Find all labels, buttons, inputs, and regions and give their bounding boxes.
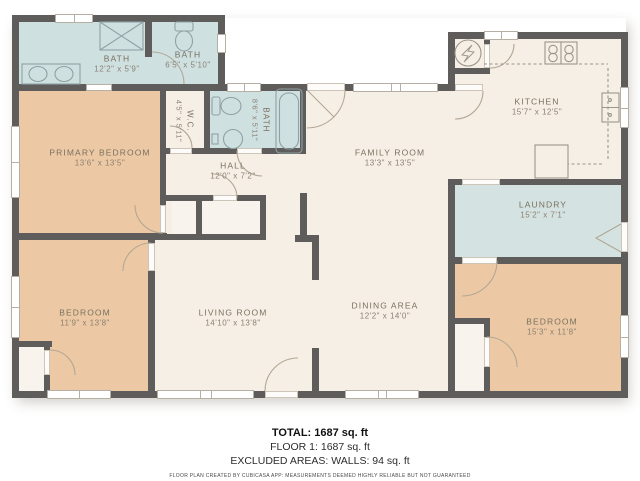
label-living-room: LIVING ROOM 14'10" x 13'8": [199, 307, 268, 330]
disclaimer: FLOOR PLAN CREATED BY CUBICASA APP: MEAS…: [0, 473, 640, 479]
door: [484, 44, 490, 68]
area-summary: TOTAL: 1687 sq. ft FLOOR 1: 1687 sq. ft …: [0, 428, 640, 479]
wall: [12, 233, 167, 240]
door: [265, 391, 298, 398]
door: [455, 84, 483, 91]
wall: [448, 32, 628, 39]
label-laundry: LAUNDRY 15'2" x 7'1": [519, 199, 567, 222]
window: [345, 390, 419, 399]
window: [620, 315, 629, 358]
door: [160, 205, 166, 233]
window: [55, 14, 93, 23]
wall: [204, 91, 210, 149]
floor-strip: [448, 91, 455, 179]
label-wc: W.C. 4'5" x 5'11": [174, 100, 195, 142]
door: [170, 148, 192, 154]
window: [47, 390, 111, 399]
wall: [145, 15, 152, 57]
wall: [218, 15, 225, 91]
label-bath-hall: BATH 6'5" x 5'10": [165, 49, 210, 72]
wall: [166, 234, 266, 240]
door: [484, 337, 490, 367]
entry-door: [307, 83, 345, 91]
door: [621, 222, 628, 252]
label-primary-bedroom: PRIMARY BEDROOM 13'6" x 13'5": [49, 147, 150, 170]
window: [217, 34, 226, 53]
label-family-room: FAMILY ROOM 13'3" x 13'5": [355, 147, 425, 170]
window: [484, 31, 518, 40]
label-bath-main: BATH 12'2" x 5'9": [94, 53, 139, 76]
label-dining-area: DINING AREA 12'2" x 14'0": [352, 300, 419, 323]
closet-hall-b-floor: [202, 201, 260, 234]
wall: [12, 15, 225, 22]
label-hall: HALL 12'0" x 7'2": [210, 160, 255, 183]
window: [11, 276, 20, 338]
wall: [300, 84, 306, 154]
total-area: TOTAL: 1687 sq. ft: [0, 428, 640, 439]
wall: [312, 242, 319, 280]
wall: [196, 201, 202, 234]
wall: [295, 235, 319, 242]
door: [462, 257, 497, 264]
label-bath-ensuite: BATH 8'6" x 5'11": [250, 99, 271, 141]
window: [620, 87, 629, 128]
wall: [448, 179, 455, 391]
window: [11, 126, 20, 198]
door: [213, 195, 237, 201]
closet-hall-a-floor: [172, 201, 196, 234]
wall: [448, 32, 455, 91]
excluded-area: EXCLUDED AREAS: WALLS: 94 sq. ft: [0, 456, 640, 467]
closet-right-floor: [455, 324, 484, 391]
wall-opening: [86, 84, 112, 91]
floor-plan: BATH 12'2" x 5'9" BATH 6'5" x 5'10" W.C.…: [0, 0, 640, 481]
door: [148, 243, 155, 271]
wall-opening: [462, 179, 500, 185]
window: [227, 83, 261, 92]
floor1-area: FLOOR 1: 1687 sq. ft: [0, 442, 640, 453]
door: [237, 148, 262, 154]
label-bedroom-right: BEDROOM 15'3" x 11'8": [526, 316, 578, 339]
label-kitchen: KITCHEN 15'7" x 12'5": [512, 96, 562, 119]
door: [44, 350, 50, 375]
closet-left-floor: [19, 347, 44, 391]
wall: [300, 193, 307, 238]
wall: [312, 348, 319, 391]
window: [157, 390, 254, 399]
label-bedroom-left: BEDROOM 11'9" x 13'8": [59, 307, 111, 330]
window: [353, 83, 438, 92]
